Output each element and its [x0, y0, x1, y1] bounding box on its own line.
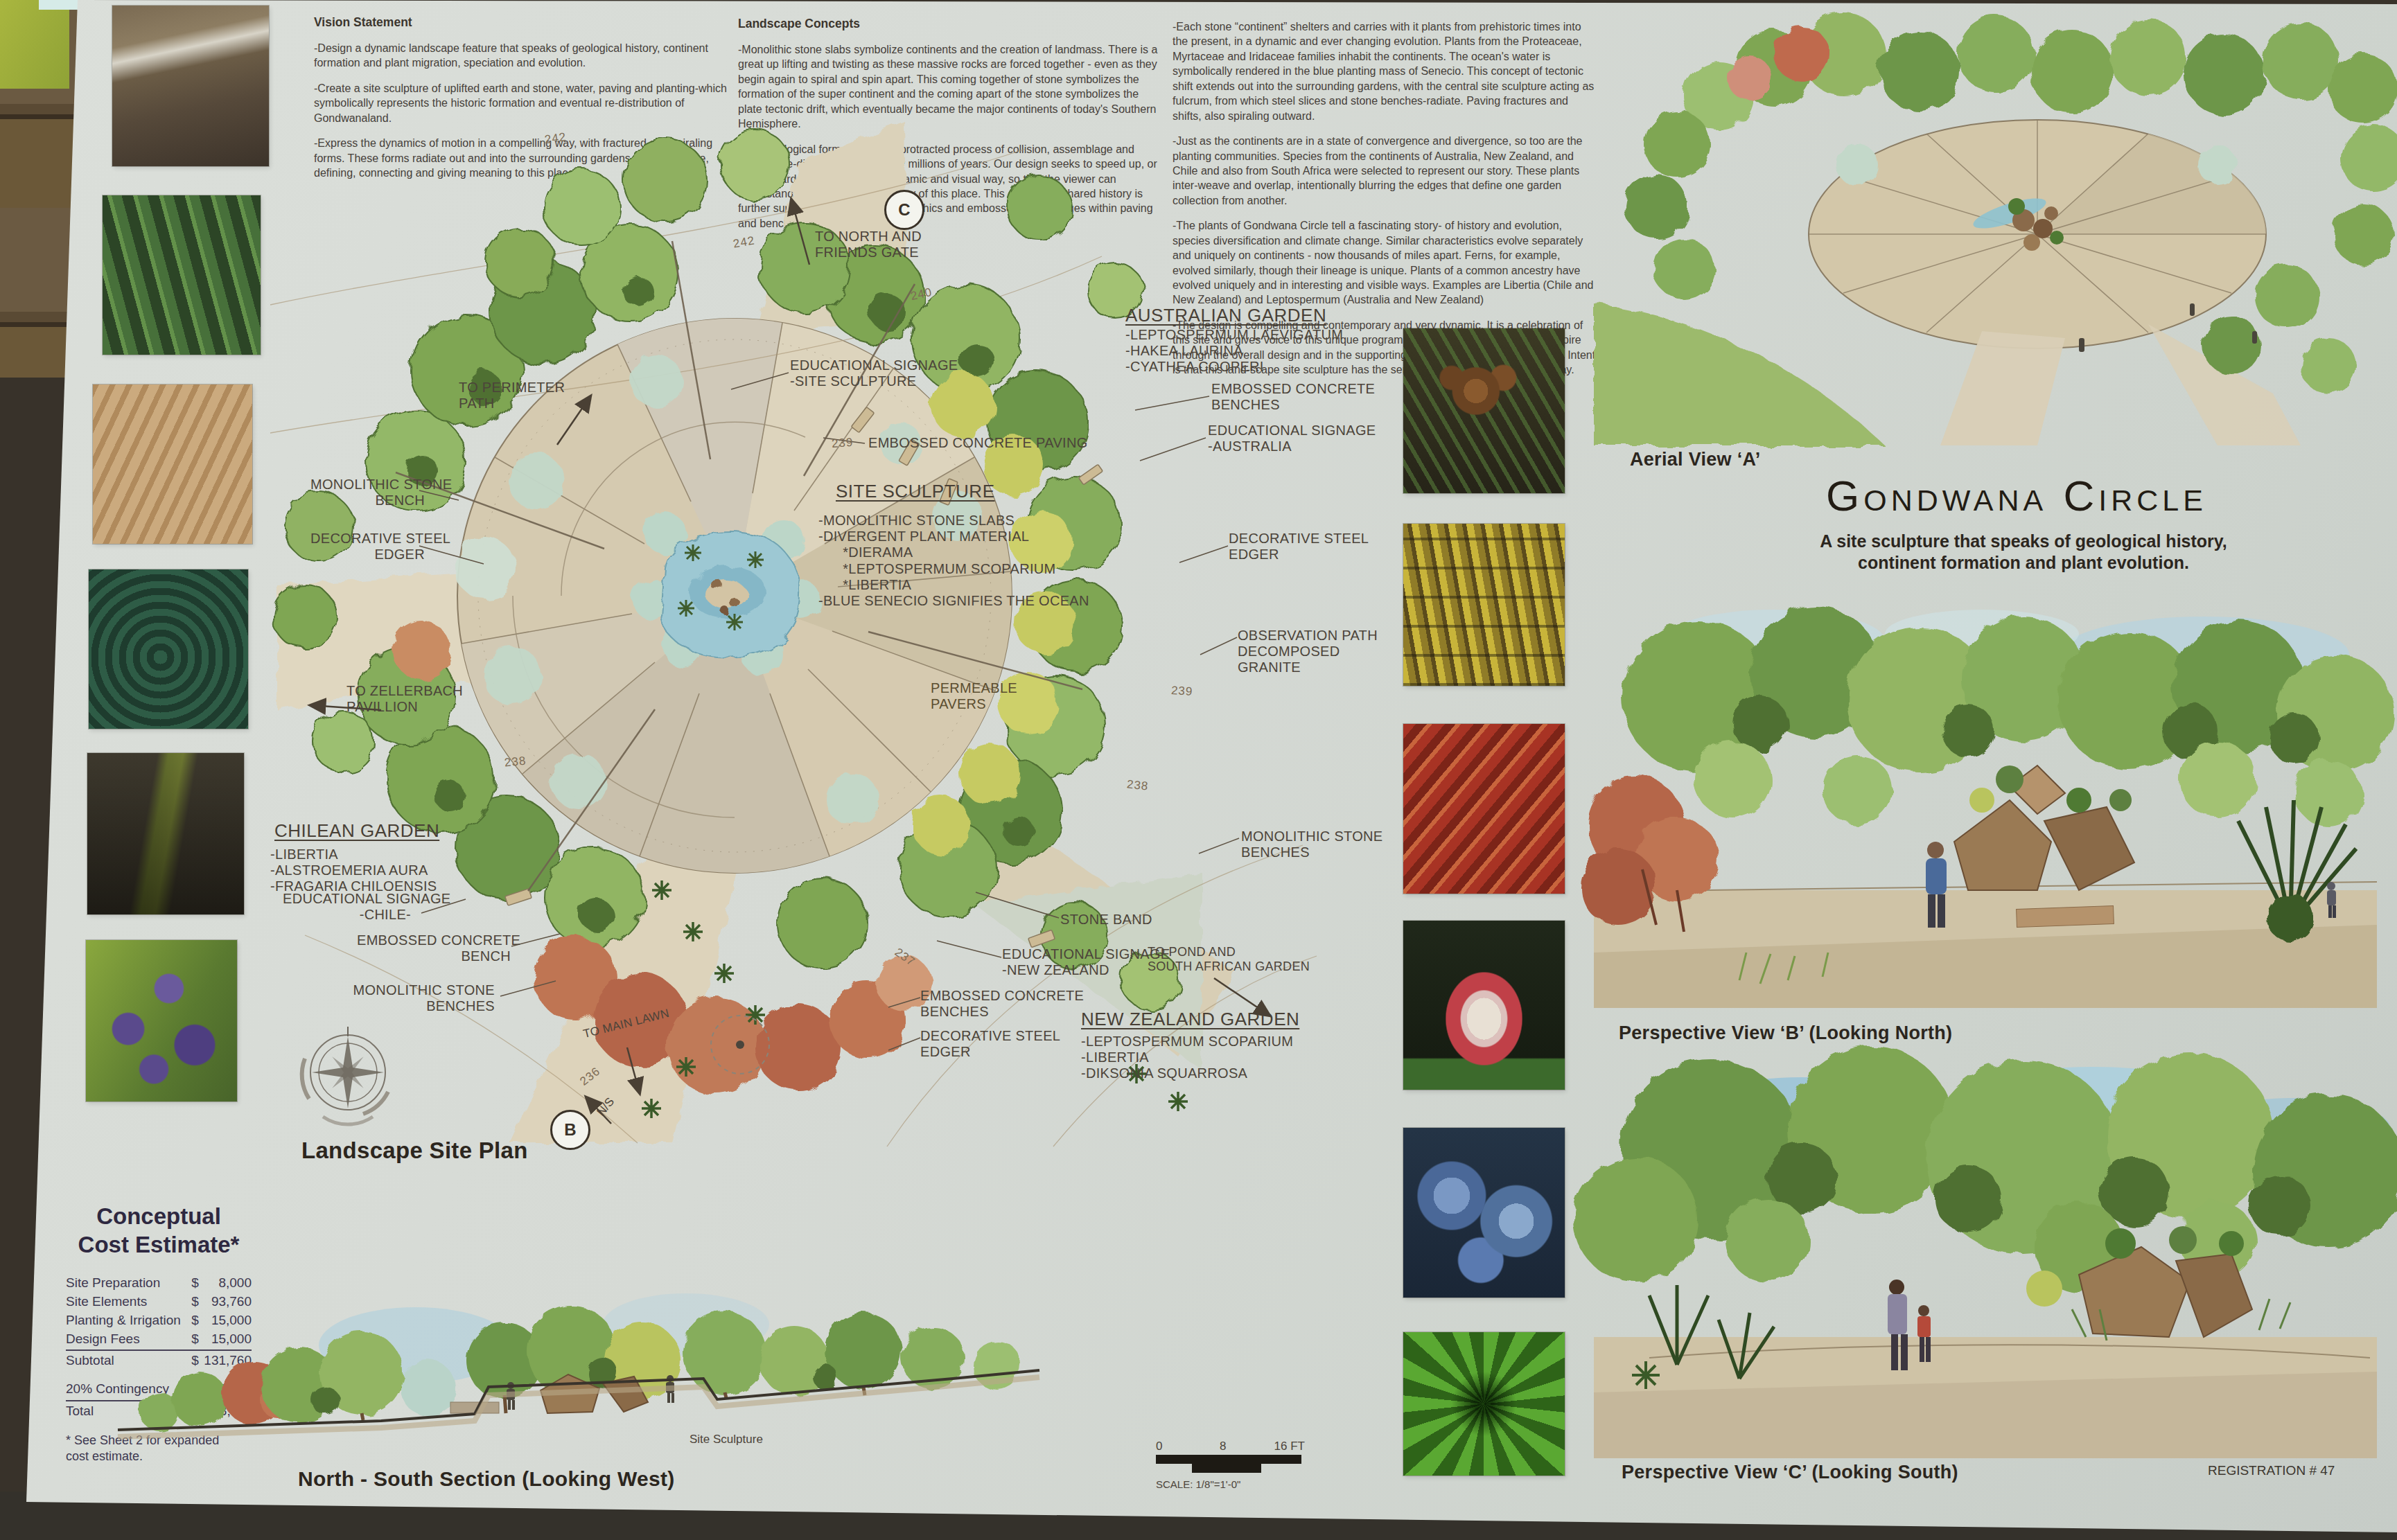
contour-label: 238 [504, 754, 527, 770]
plan-label: MONOLITHIC STONE BENCHES [341, 982, 495, 1014]
king-protea-flower-photo [1403, 921, 1565, 1090]
section-sculpture-label: Site Sculpture [690, 1433, 763, 1446]
plan-label: PERMEABLE PAVERS [931, 680, 1017, 712]
concepts-title: Landscape Concepts [738, 17, 1162, 31]
plan-label: -LEPTOSPERMUM LAEVIGATUM -HAKEA LAURINA … [1125, 327, 1343, 375]
plan-label: STONE BAND [1060, 912, 1152, 928]
aerial-view-illustration [1594, 6, 2392, 445]
plan-australian-garden-heading: AUSTRALIAN GARDEN [1125, 305, 1326, 326]
perspective-c-caption: Perspective View ‘C’ (Looking South) [1622, 1462, 1958, 1483]
section-marker-c: C [884, 190, 924, 230]
plan-label: EMBOSSED CONCRETE BENCHES [920, 988, 1084, 1020]
registration-number: REGISTRATION # 47 [2208, 1463, 2335, 1478]
plan-label: DECORATIVE STEEL EDGER [310, 531, 425, 563]
plan-title: Landscape Site Plan [301, 1138, 528, 1164]
plan-label: EDUCATIONAL SIGNAGE -NEW ZEALAND [1002, 946, 1170, 978]
plan-label: EMBOSSED CONCRETE BENCH [357, 932, 511, 964]
plan-label: TO POND AND SOUTH AFRICAN GARDEN [1148, 945, 1310, 974]
rock-strata-photo [112, 6, 269, 166]
green-wall-strip [0, 0, 69, 89]
tree-fern-crozier-photo [1403, 328, 1565, 493]
plan-label: EMBOSSED CONCRETE PAVING [868, 435, 1088, 451]
contour-label: 239 [1170, 684, 1193, 699]
board-subtitle: A site sculpture that speaks of geologic… [1677, 531, 2370, 574]
scale-tick: 0 [1156, 1440, 1162, 1453]
compass-rose [295, 1023, 399, 1133]
blue-succulent-rosettes-photo [1403, 1128, 1565, 1298]
fern-fossil-photo [93, 384, 252, 544]
plan-chilean-garden-heading: CHILEAN GARDEN [274, 820, 439, 842]
perspective-b-caption: Perspective View ‘B’ (Looking North) [1619, 1023, 1952, 1044]
fossil-fern-on-rock-photo [87, 753, 244, 914]
vision-paragraph: -Design a dynamic landscape feature that… [314, 41, 730, 71]
plan-label: -LIBERTIA -ALSTROEMERIA AURA -FRAGARIA C… [270, 847, 437, 895]
purple-bell-flowers-photo [86, 940, 237, 1101]
contour-label: 239 [831, 436, 854, 451]
scale-tick: 16 FT [1274, 1440, 1305, 1453]
perspective-b-illustration [1594, 592, 2377, 1008]
scale-caption: SCALE: 1/8"=1'-0" [1156, 1478, 1305, 1490]
ammonite-fossil-photo [89, 569, 248, 729]
section-marker-b: B [550, 1110, 590, 1150]
contour-label: 238 [1126, 777, 1149, 793]
plan-label: MONOLITHIC STONE BENCH [310, 477, 425, 508]
plan-label: EMBOSSED CONCRETE BENCHES [1211, 381, 1375, 413]
north-south-section-drawing [118, 1214, 1039, 1453]
plan-new-zealand-garden-heading: NEW ZEALAND GARDEN [1081, 1009, 1299, 1030]
scale-bar-segment [1192, 1464, 1261, 1473]
scale-bar: 0 8 16 FT SCALE: 1/8"=1'-0" [1156, 1440, 1305, 1490]
board-title: Gondwana Circle [1663, 471, 2370, 520]
perspective-c-illustration [1594, 1067, 2377, 1458]
aerial-view-caption: Aerial View ‘A’ [1630, 449, 1761, 470]
plan-label: EDUCATIONAL SIGNAGE -CHILE- [283, 891, 411, 923]
red-flax-foliage-photo [1403, 724, 1565, 894]
golden-fern-fronds-photo [1403, 524, 1565, 686]
vision-title: Vision Statement [314, 15, 730, 30]
spiral-aloe-photo [1403, 1332, 1565, 1476]
plan-site-sculpture-heading: SITE SCULPTURE [836, 481, 995, 502]
plan-label: -LEPTOSPERMUM SCOPARIUM -LIBERTIA -DIKSO… [1081, 1034, 1293, 1082]
section-caption: North - South Section (Looking West) [298, 1467, 675, 1491]
plan-label: MONOLITHIC STONE BENCHES [1241, 829, 1382, 860]
plan-label: TO ZELLERBACH PAVILLION [346, 683, 463, 715]
scale-tick: 8 [1220, 1440, 1226, 1453]
plan-label: OBSERVATION PATH DECOMPOSED GRANITE [1238, 628, 1378, 676]
plan-label: DECORATIVE STEEL EDGER [920, 1028, 1060, 1060]
plan-label: -MONOLITHIC STONE SLABS -DIVERGENT PLANT… [818, 513, 1089, 609]
green-ferns-photo [103, 195, 261, 355]
presentation-board-photo: Vision Statement -Design a dynamic lands… [0, 0, 2397, 1540]
plan-label: TO PERIMETER PATH [459, 380, 565, 411]
plan-label: EDUCATIONAL SIGNAGE -AUSTRALIA [1208, 423, 1376, 454]
plan-label: TO NORTH AND FRIENDS GATE [815, 229, 922, 260]
plan-label: DECORATIVE STEEL EDGER [1229, 531, 1369, 563]
persp-b-rocks [1954, 765, 2134, 890]
plan-label: EDUCATIONAL SIGNAGE -SITE SCULPTURE [790, 357, 958, 389]
scale-bar-segment [1156, 1455, 1301, 1464]
